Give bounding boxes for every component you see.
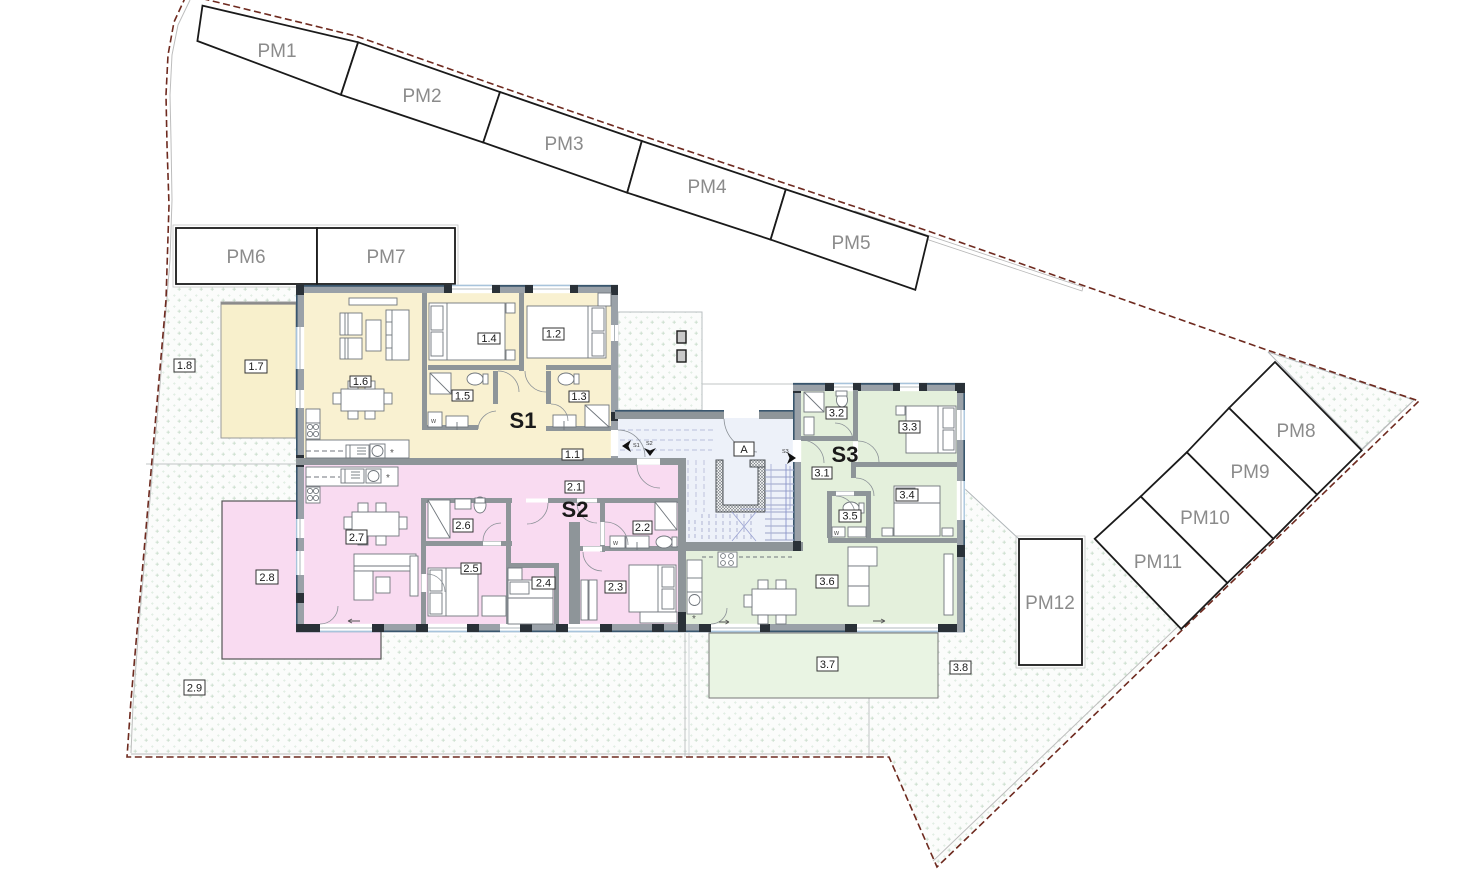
svg-text:A: A xyxy=(740,444,748,456)
svg-text:3.7: 3.7 xyxy=(820,659,835,671)
svg-text:2.1: 2.1 xyxy=(567,482,582,494)
svg-text:w: w xyxy=(833,530,840,537)
svg-text:S3: S3 xyxy=(832,442,859,467)
svg-text:2.8: 2.8 xyxy=(259,572,274,584)
svg-text:PM4: PM4 xyxy=(687,177,727,198)
svg-text:2.2: 2.2 xyxy=(635,522,650,534)
svg-text:1.7: 1.7 xyxy=(248,361,263,373)
svg-text:w: w xyxy=(430,418,437,425)
svg-text:PM6: PM6 xyxy=(226,247,265,268)
svg-text:3.4: 3.4 xyxy=(899,490,914,502)
svg-text:3.1: 3.1 xyxy=(814,468,829,480)
svg-text:3.5: 3.5 xyxy=(842,511,857,523)
svg-text:1.8: 1.8 xyxy=(177,360,192,372)
svg-text:1.5: 1.5 xyxy=(455,391,470,403)
svg-text:2.9: 2.9 xyxy=(187,683,202,695)
svg-text:PM1: PM1 xyxy=(257,41,296,62)
svg-text:3.8: 3.8 xyxy=(953,662,968,674)
svg-text:2.6: 2.6 xyxy=(455,520,470,532)
svg-text:PM8: PM8 xyxy=(1276,421,1315,442)
svg-text:3.2: 3.2 xyxy=(829,408,844,420)
svg-text:S3: S3 xyxy=(782,449,789,455)
svg-text:1.3: 1.3 xyxy=(571,391,586,403)
svg-text:PM9: PM9 xyxy=(1230,462,1269,483)
svg-text:*: * xyxy=(692,614,696,625)
svg-text:1.2: 1.2 xyxy=(546,329,561,341)
svg-text:2.5: 2.5 xyxy=(463,563,478,575)
svg-text:PM11: PM11 xyxy=(1134,552,1182,573)
svg-text:S2: S2 xyxy=(562,497,589,522)
svg-text:3.6: 3.6 xyxy=(819,576,834,588)
svg-text:PM3: PM3 xyxy=(544,134,583,155)
svg-text:1.4: 1.4 xyxy=(481,333,496,345)
svg-text:*: * xyxy=(390,448,394,459)
svg-text:w: w xyxy=(612,540,619,547)
svg-text:1.1: 1.1 xyxy=(565,449,580,461)
svg-text:PM2: PM2 xyxy=(402,86,441,107)
svg-text:S2: S2 xyxy=(646,441,653,447)
svg-text:3.3: 3.3 xyxy=(902,422,917,434)
svg-text:PM12: PM12 xyxy=(1025,593,1075,614)
svg-text:*: * xyxy=(386,473,390,484)
svg-text:2.3: 2.3 xyxy=(608,582,623,594)
svg-text:PM7: PM7 xyxy=(366,247,405,268)
svg-text:2.7: 2.7 xyxy=(349,532,364,544)
svg-text:S1: S1 xyxy=(510,408,537,433)
svg-text:S1: S1 xyxy=(633,443,640,449)
svg-text:2.4: 2.4 xyxy=(536,578,551,590)
svg-text:PM10: PM10 xyxy=(1180,508,1230,529)
svg-text:PM5: PM5 xyxy=(831,233,870,254)
svg-text:1.6: 1.6 xyxy=(353,376,368,388)
